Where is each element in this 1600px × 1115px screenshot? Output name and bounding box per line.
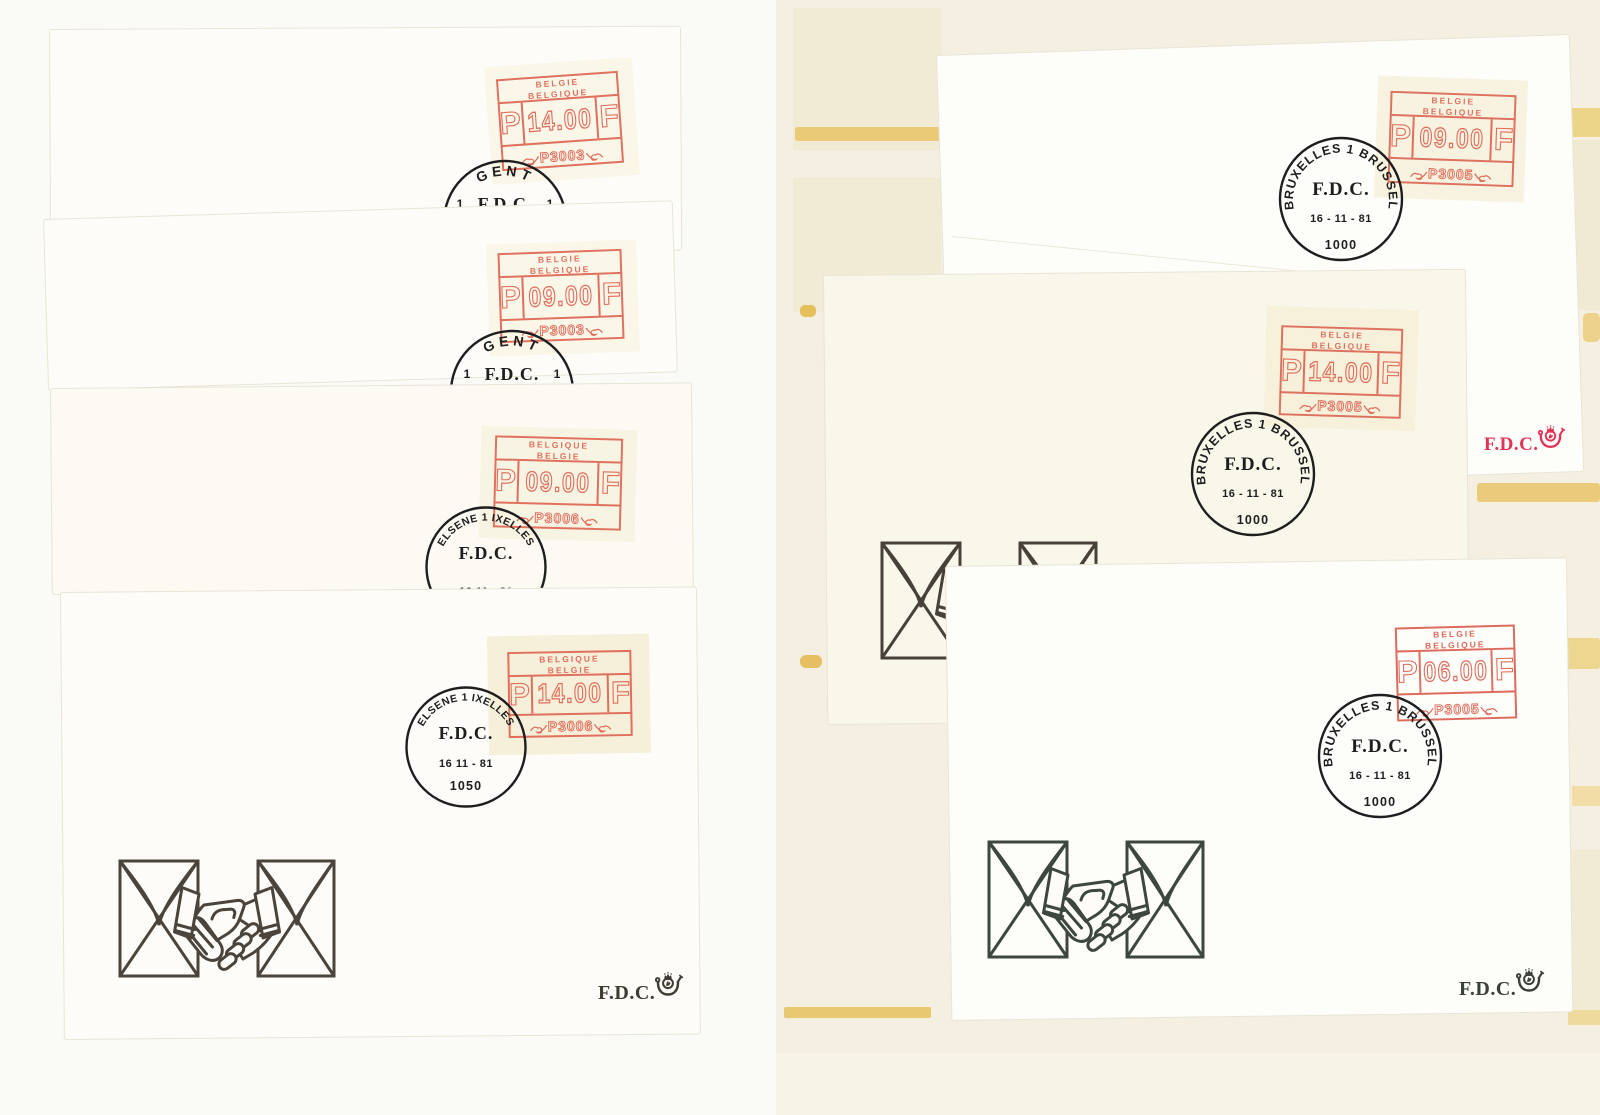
svg-text:F.D.C.: F.D.C. [439,723,494,743]
svg-text:16 - 11 - 81: 16 - 11 - 81 [1349,770,1411,782]
svg-text:1000: 1000 [1237,513,1270,527]
svg-text:F.D.C.: F.D.C. [1312,179,1370,200]
svg-text:16 - 11 - 81: 16 - 11 - 81 [1222,488,1284,500]
svg-text:16 - 11 - 81: 16 - 11 - 81 [1310,213,1372,225]
svg-text:1000: 1000 [1364,795,1397,809]
svg-text:1050: 1050 [450,779,483,793]
svg-text:F.D.C.: F.D.C. [1351,736,1409,757]
svg-text:F.D.C.: F.D.C. [459,543,514,563]
svg-text:16 11 - 81: 16 11 - 81 [439,758,493,770]
svg-text:1000: 1000 [1325,238,1358,252]
svg-text:1: 1 [464,367,471,381]
svg-text:BRUXELLES 1 BRUSSEL: BRUXELLES 1 BRUSSEL [1321,698,1439,767]
svg-text:F.D.C.: F.D.C. [1224,454,1282,475]
svg-text:BRUXELLES 1 BRUSSEL: BRUXELLES 1 BRUSSEL [1194,416,1312,485]
svg-text:1: 1 [554,367,561,381]
svg-text:F.D.C.: F.D.C. [485,364,540,384]
svg-text:BRUXELLES 1 BRUSSEL: BRUXELLES 1 BRUSSEL [1282,141,1400,210]
